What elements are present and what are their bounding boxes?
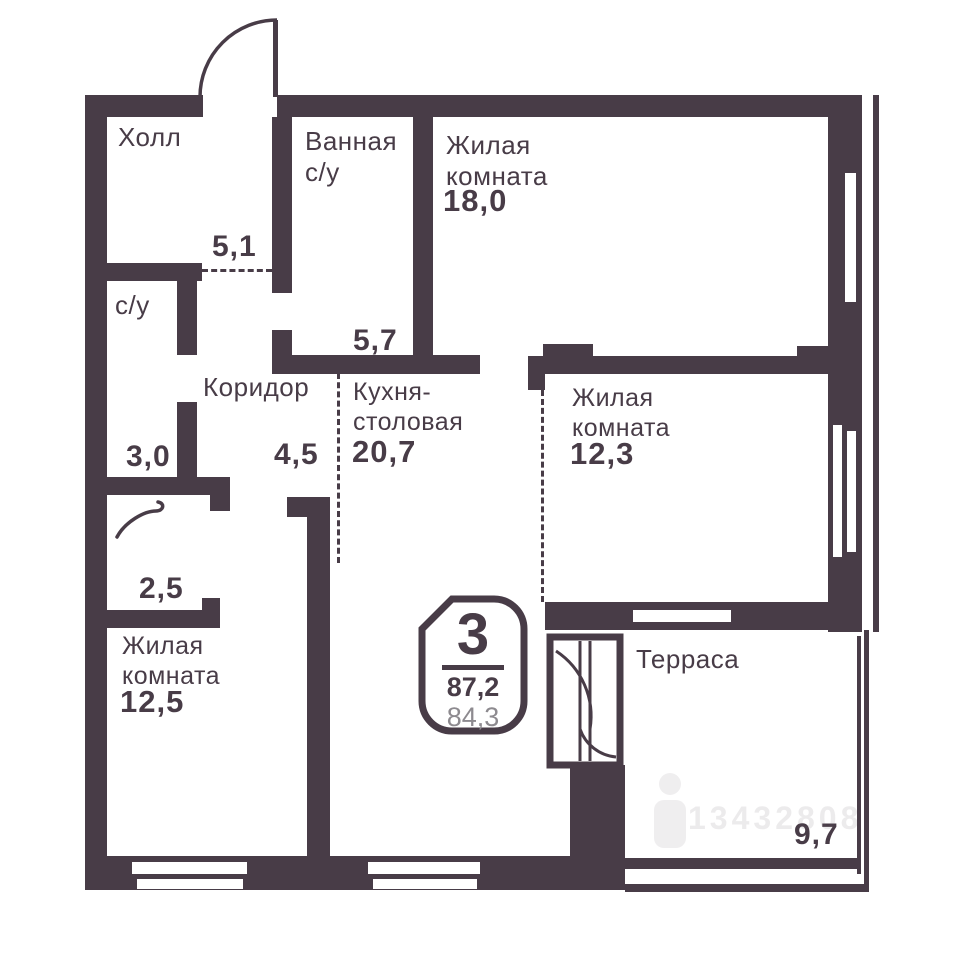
opening-living-mid (541, 390, 547, 602)
wall-wardrobe-top (85, 477, 230, 495)
wall-wardrobe-top-stub (210, 495, 230, 511)
room-area-bathroom: 5,7 (353, 324, 398, 358)
wall-terrace-block (570, 765, 625, 890)
badge-rooms-count: 3 (418, 601, 528, 668)
room-label-kitchen: Кухня- столовая (353, 378, 463, 437)
room-label-wc: с/у (115, 290, 150, 321)
wall-terrace-right-inner (857, 636, 861, 874)
wall-corridor-west-tab (287, 497, 307, 517)
wall-top-right (277, 95, 862, 117)
window-living-top (845, 173, 856, 302)
wall-nub-left (543, 344, 593, 356)
wall-nub-right (797, 346, 828, 356)
wall-tab-living-mid (528, 374, 545, 390)
room-label-living-bottom: Жилая комната (122, 632, 220, 691)
wall-terrace-bottom-outer (625, 884, 869, 892)
wall-living-top-bottom (528, 356, 862, 374)
room-area-corridor: 4,5 (274, 438, 319, 472)
room-label-living-mid: Жилая комната (572, 384, 670, 443)
wall-wardrobe-bottom (85, 610, 220, 628)
badge-living-area: 84,3 (418, 702, 528, 733)
hanger-icon (112, 498, 170, 544)
room-area-living-top: 18,0 (443, 183, 507, 219)
wall-bathroom-living (413, 117, 433, 373)
wall-right-facade-line (873, 95, 879, 632)
badge-divider (442, 665, 504, 670)
window-kitchen-a (368, 862, 480, 874)
room-label-terrace: Терраса (636, 644, 739, 675)
opening-corridor-kitchen (337, 373, 343, 563)
room-label-corridor: Коридор (203, 372, 309, 403)
wall-hall-bathroom (272, 117, 292, 293)
window-living-mid-right-b (847, 431, 856, 552)
wall-terrace-bottom-inner (625, 858, 861, 869)
window-kitchen-b (373, 879, 477, 889)
badge-total-area: 87,2 (418, 672, 528, 703)
terrace-door-icon (546, 633, 624, 769)
room-area-hall: 5,1 (212, 230, 257, 264)
window-living-mid-right-a (833, 425, 842, 557)
window-living-bottom-a (132, 862, 247, 874)
room-area-wardrobe: 2,5 (139, 572, 184, 606)
window-living-bottom-b (137, 879, 243, 889)
wall-wardrobe-bottom-stub (202, 598, 220, 611)
wall-terrace-right-outer (864, 630, 869, 891)
watermark-id: 13432808 (688, 800, 862, 837)
wall-corridor-west (307, 497, 330, 856)
wall-wc-right-upper (177, 281, 197, 355)
room-area-kitchen: 20,7 (352, 434, 416, 470)
wall-hall-bottom (85, 263, 202, 281)
room-area-wc: 3,0 (126, 440, 171, 474)
room-area-living-mid: 12,3 (570, 436, 634, 472)
room-label-hall: Холл (118, 122, 181, 153)
floor-plan: Холл 5,1 Ванная с/у 5,7 Жилая комната 18… (0, 0, 960, 960)
room-label-bathroom: Ванная с/у (305, 126, 397, 187)
room-area-living-bottom: 12,5 (120, 684, 184, 720)
wall-wc-right-lower (177, 402, 197, 480)
watermark-logo-icon (648, 772, 692, 850)
window-living-mid-bottom (633, 610, 731, 622)
opening-hall-corridor (202, 269, 272, 275)
apartment-badge: 3 87,2 84,3 (418, 595, 528, 735)
entrance-door-leaf (273, 20, 278, 97)
entrance-door-arc-icon (198, 18, 280, 100)
